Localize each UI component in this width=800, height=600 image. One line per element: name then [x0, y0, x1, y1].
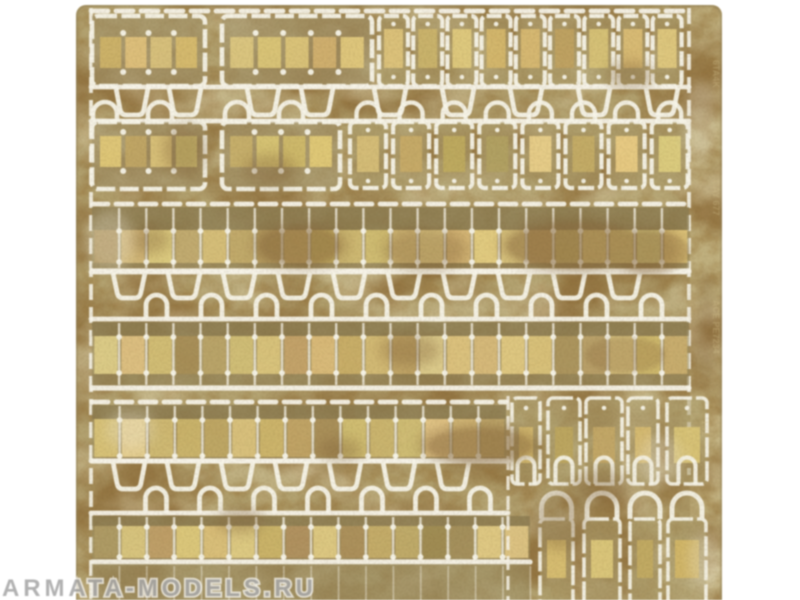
svg-text:CAY 677: CAY 677: [711, 180, 721, 216]
svg-text:6TA4K: 6TA4K: [711, 60, 721, 88]
svg-text:ARMATA-MODELS.RU: ARMATA-MODELS.RU: [2, 575, 317, 600]
svg-text:1:72: 1:72: [700, 420, 709, 437]
svg-text:ACE PE7234: ACE PE7234: [711, 300, 721, 354]
